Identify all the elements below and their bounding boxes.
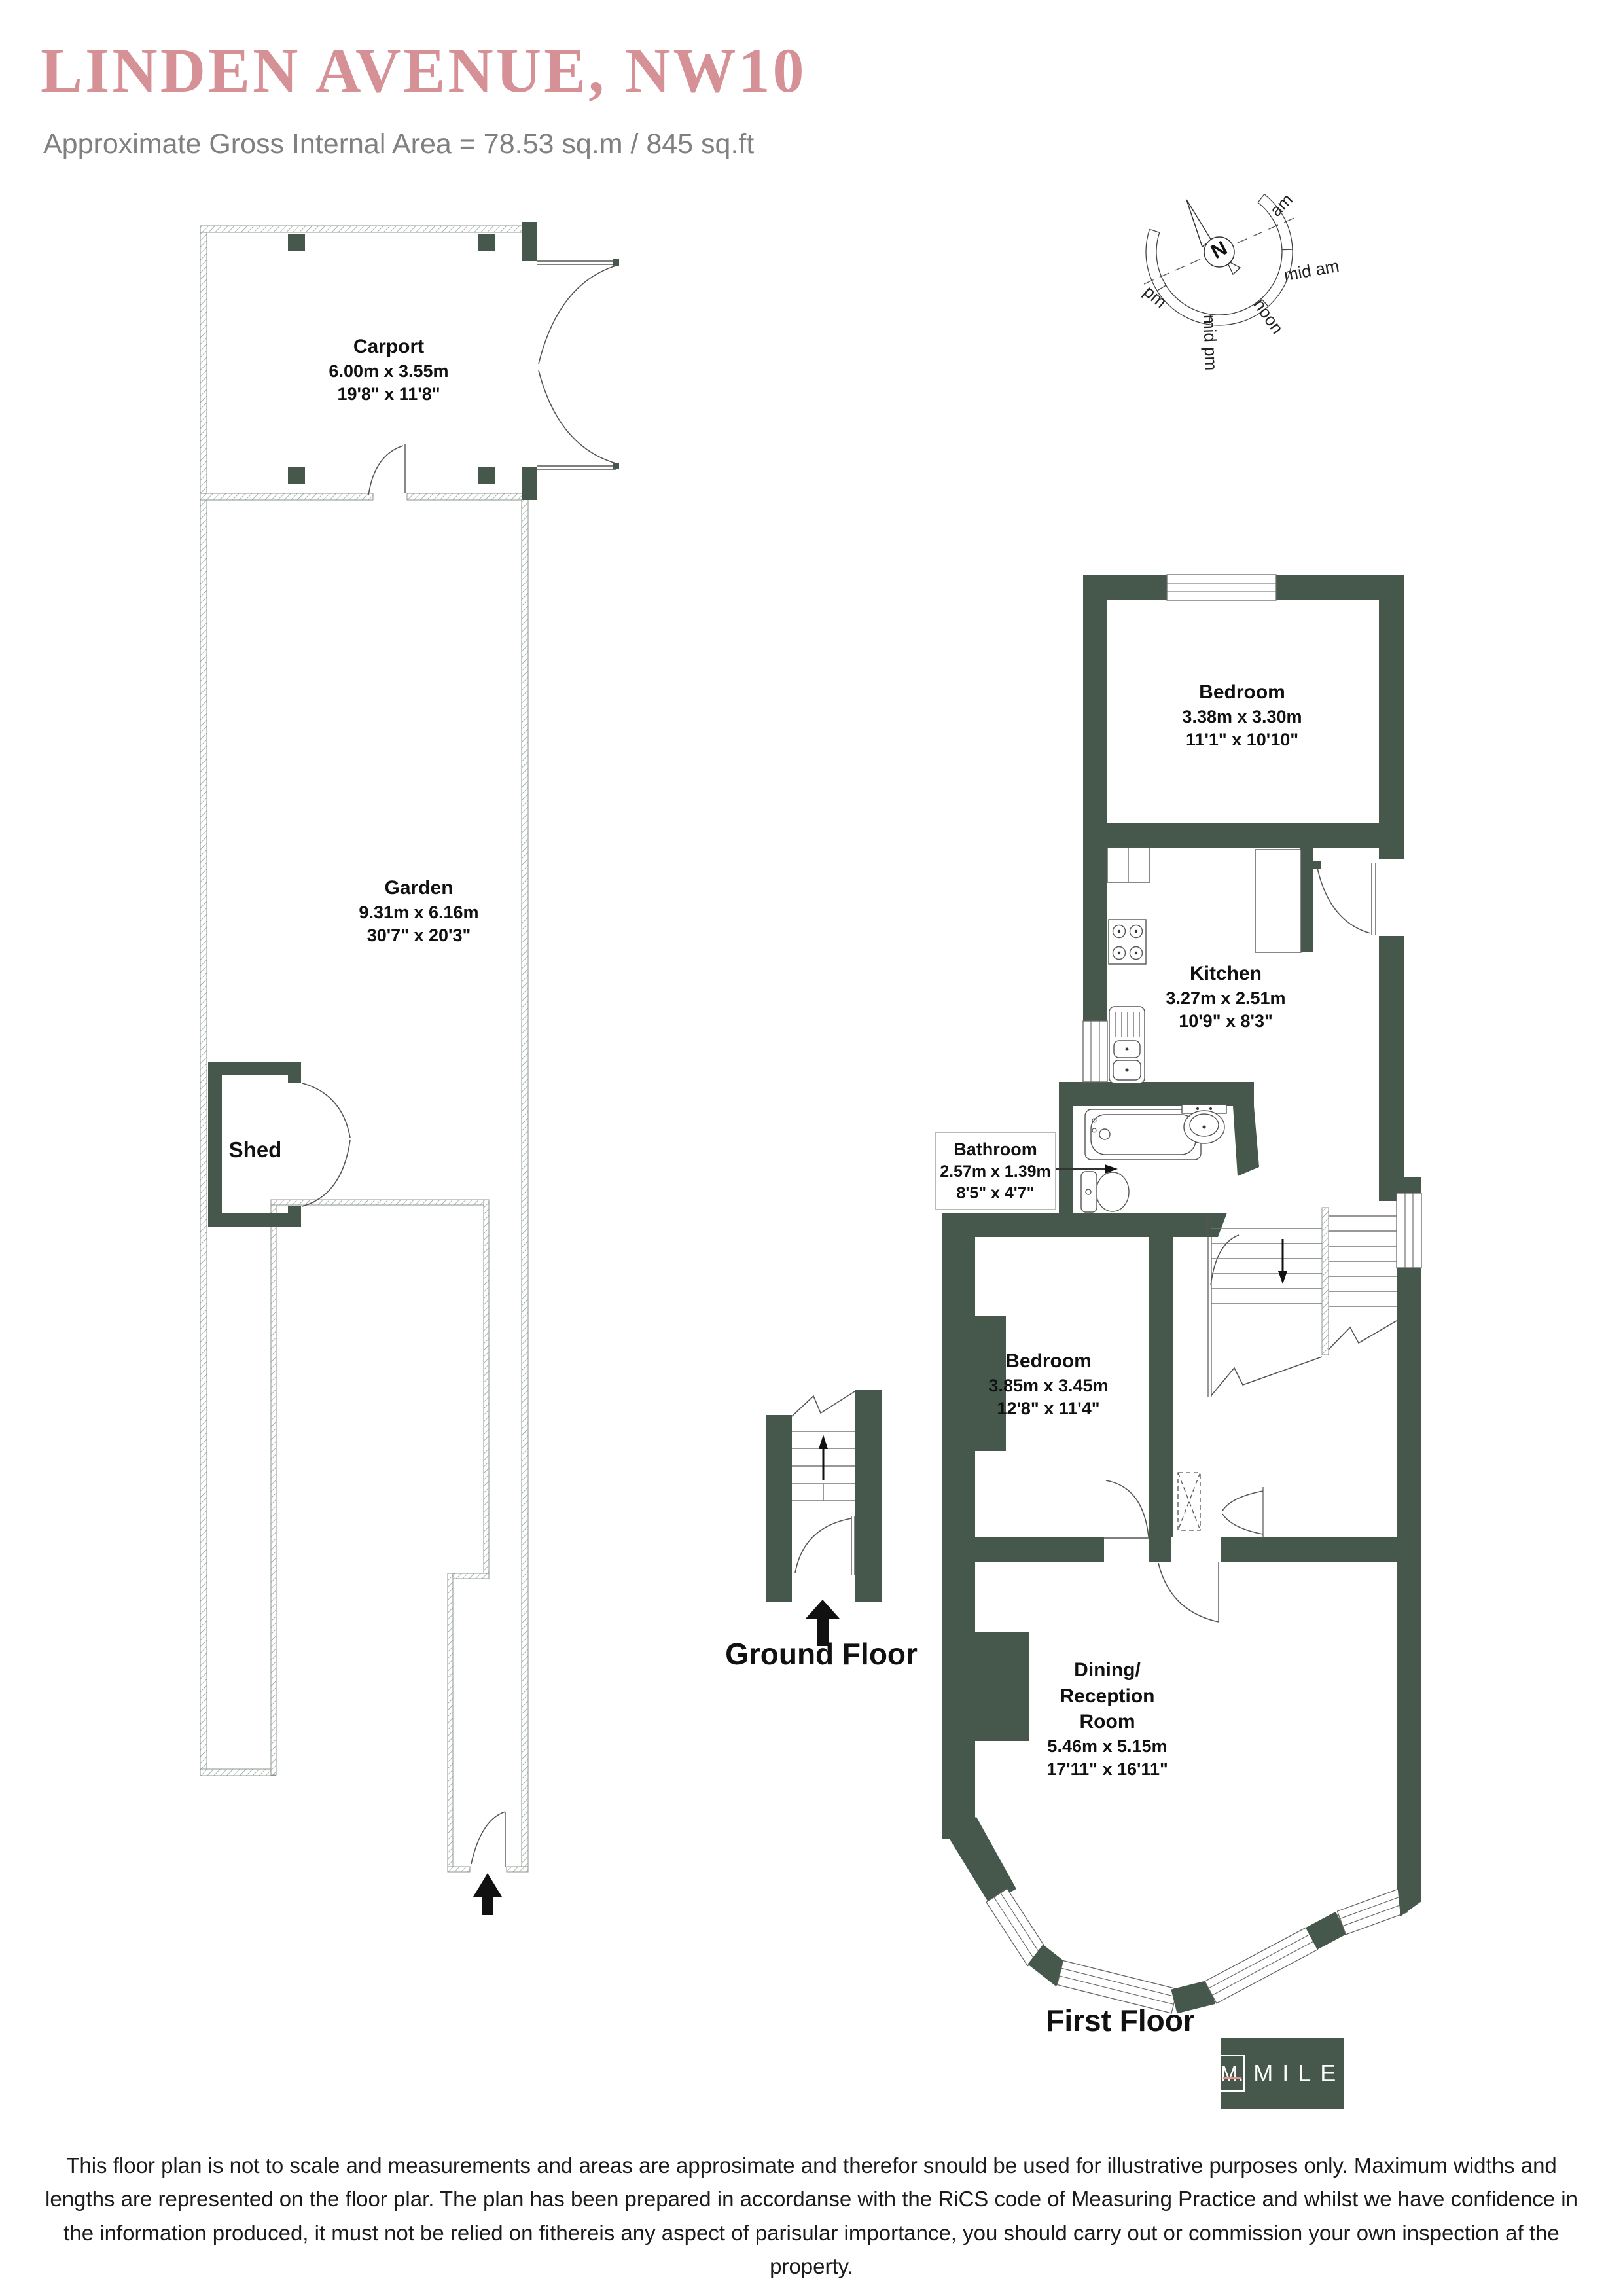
shed-label: Shed	[209, 1136, 301, 1164]
ground-floor-title: Ground Floor	[690, 1636, 952, 1672]
ground-floor-stairs	[766, 1390, 882, 1646]
compass-mid-pm-label: mid pm	[1198, 296, 1222, 389]
mile-logo: M. MILE	[1221, 2038, 1344, 2109]
kitchen-label: Kitchen 3.27m x 2.51m 10'9" x 8'3"	[1121, 961, 1330, 1033]
mile-logo-monogram: M.	[1219, 2055, 1245, 2092]
mile-logo-brand: MILE	[1253, 2060, 1345, 2087]
mile-logo-line	[1223, 2077, 1241, 2079]
stairs-window	[1397, 1193, 1421, 1268]
bathroom-label: Bathroom 2.57m x 1.39m 8'5" x 4'7"	[935, 1132, 1056, 1210]
bay-window	[942, 1817, 1421, 2013]
bedroom-top-label: Bedroom 3.38m x 3.30m 11'1" x 10'10"	[1124, 679, 1360, 752]
entrance-door	[1313, 861, 1376, 935]
bedroom-top-window	[1167, 575, 1276, 600]
disclaimer-text: This floor plan is not to scale and meas…	[0, 2149, 1623, 2284]
garden-entrance-arrow-icon	[473, 1873, 502, 1915]
carport-label: Carport 6.00m x 3.55m 19'8" x 11'8"	[284, 334, 493, 406]
bedroom-middle-label: Bedroom 3.85m x 3.45m 12'8" x 11'4"	[937, 1348, 1160, 1421]
dining-room-label: Dining/ Reception Room 5.46m x 5.15m 17'…	[990, 1657, 1225, 1782]
garden-label: Garden 9.31m x 6.16m 30'7" x 20'3"	[314, 875, 524, 948]
first-floor-title: First Floor	[990, 2003, 1251, 2038]
floor-plan-page: LINDEN AVENUE, NW10 Approximate Gross In…	[0, 0, 1623, 2296]
kitchen-window	[1083, 1021, 1107, 1082]
